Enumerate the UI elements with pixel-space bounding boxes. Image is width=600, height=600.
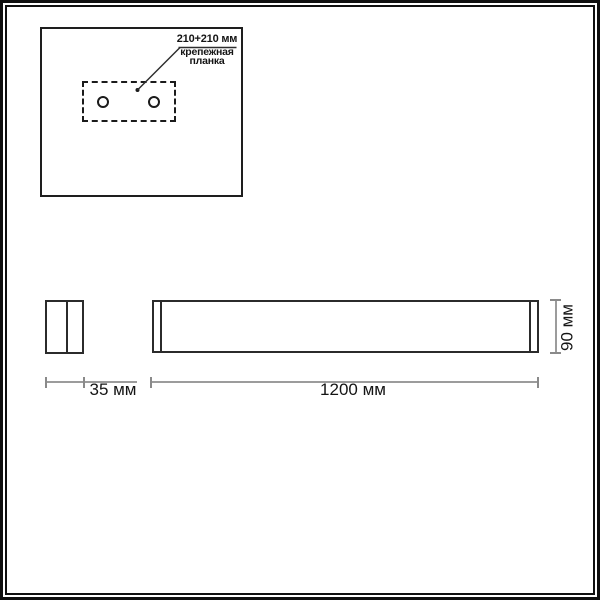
dimension-tick <box>83 377 85 388</box>
mounting-hole-right <box>148 96 160 108</box>
dimension-label-1200: 1200 мм <box>303 380 403 400</box>
mounting-plate-label-line2: планка <box>174 57 240 66</box>
front-view-endcap-right <box>529 302 531 351</box>
dimension-tick <box>550 299 561 301</box>
lamp-dimension-drawing: 210+210 мм крепежная планка 35 мм 1200 м… <box>0 0 600 600</box>
mounting-plate-dimension-text: 210+210 мм <box>174 33 240 45</box>
side-view-body <box>45 300 84 354</box>
dimension-tick <box>150 377 152 388</box>
mounting-plate-label: крепежная планка <box>174 48 240 66</box>
side-view-divider-line <box>66 302 68 352</box>
dimension-tick <box>45 377 47 388</box>
front-view-endcap-left <box>160 302 162 351</box>
front-view-body <box>152 300 539 353</box>
dimension-tick <box>537 377 539 388</box>
mounting-hole-left <box>97 96 109 108</box>
dimension-label-90: 90 мм <box>559 304 576 352</box>
dimension-tick <box>550 352 561 354</box>
dimension-label-35: 35 мм <box>86 380 140 400</box>
